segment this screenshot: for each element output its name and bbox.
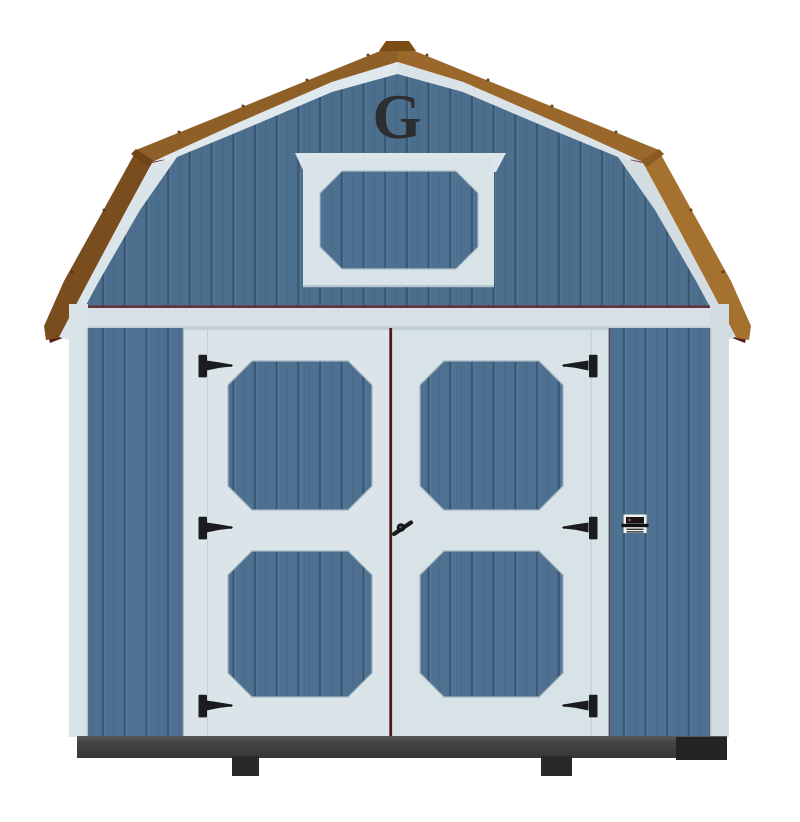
svg-text:G: G [372, 82, 421, 152]
